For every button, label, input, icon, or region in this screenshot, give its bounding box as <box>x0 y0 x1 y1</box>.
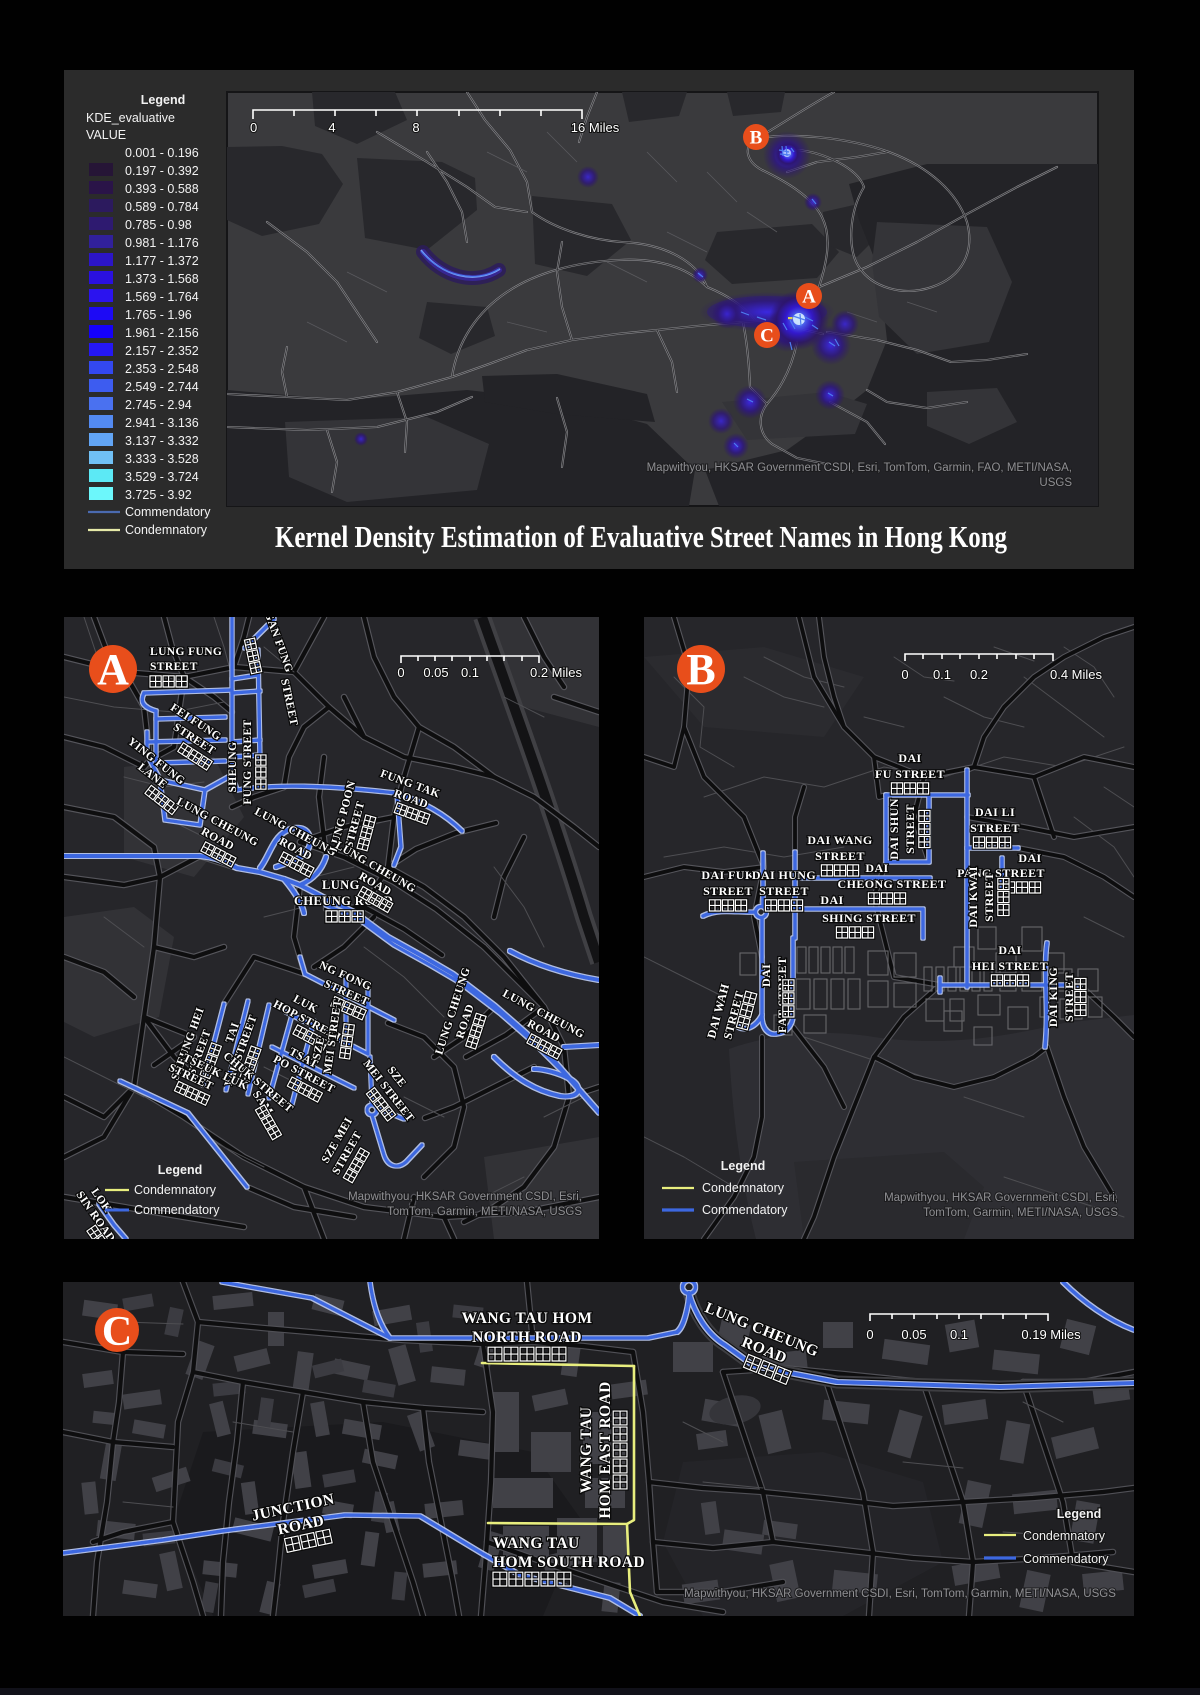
svg-text:STREET: STREET <box>815 849 865 863</box>
svg-text:CHEONG STREET: CHEONG STREET <box>838 877 947 891</box>
svg-text:Commendatory: Commendatory <box>1023 1552 1109 1566</box>
svg-text:3.333 - 3.528: 3.333 - 3.528 <box>125 452 199 466</box>
svg-text:Condemnatory: Condemnatory <box>134 1183 217 1197</box>
svg-text:3.137 - 3.332: 3.137 - 3.332 <box>125 434 199 448</box>
svg-text:0.1: 0.1 <box>950 1327 968 1342</box>
svg-text:3.529 - 3.724: 3.529 - 3.724 <box>125 470 199 484</box>
svg-text:SHEUNG: SHEUNG <box>227 742 239 793</box>
svg-text:0.2: 0.2 <box>970 667 988 682</box>
svg-text:3.725 - 3.92: 3.725 - 3.92 <box>125 488 192 502</box>
svg-text:KDE_evaluative: KDE_evaluative <box>86 111 175 125</box>
svg-text:0.4 Miles: 0.4 Miles <box>1050 667 1103 682</box>
svg-text:DAI FUK: DAI FUK <box>701 868 754 882</box>
svg-text:STREET: STREET <box>759 884 809 898</box>
svg-text:0.1: 0.1 <box>461 665 479 680</box>
svg-text:FUNG STREET: FUNG STREET <box>242 719 254 804</box>
svg-text:DAI HUNG: DAI HUNG <box>752 868 816 882</box>
svg-text:Condemnatory: Condemnatory <box>702 1181 785 1195</box>
svg-text:LUNG: LUNG <box>322 878 360 892</box>
svg-text:Mapwithyou, HKSAR Government C: Mapwithyou, HKSAR Government CSDI, Esri,… <box>647 462 1072 474</box>
svg-text:Kernel Density Estimation of E: Kernel Density Estimation of Evaluative … <box>275 519 1007 554</box>
svg-text:STREET: STREET <box>982 872 996 922</box>
svg-text:C: C <box>760 326 774 347</box>
svg-text:1.569 - 1.764: 1.569 - 1.764 <box>125 290 199 304</box>
svg-text:Mapwithyou, HKSAR Government C: Mapwithyou, HKSAR Government CSDI, Esri, <box>884 1192 1118 1204</box>
svg-text:1.177 - 1.372: 1.177 - 1.372 <box>125 254 199 268</box>
svg-text:Commendatory: Commendatory <box>134 1203 220 1217</box>
svg-text:TomTom, Garmin, METI/NASA, USG: TomTom, Garmin, METI/NASA, USGS <box>923 1207 1118 1219</box>
svg-text:STREET: STREET <box>150 661 198 673</box>
svg-text:Mapwithyou, HKSAR Government C: Mapwithyou, HKSAR Government CSDI, Esri,… <box>684 1588 1116 1600</box>
svg-text:C: C <box>102 1309 132 1355</box>
svg-text:DAI: DAI <box>759 964 773 987</box>
svg-text:DAI SHUN: DAI SHUN <box>887 798 901 860</box>
svg-text:0.589 - 0.784: 0.589 - 0.784 <box>125 200 199 214</box>
svg-text:HEI STREET: HEI STREET <box>972 959 1048 973</box>
svg-text:B: B <box>750 128 763 149</box>
svg-text:2.549 - 2.744: 2.549 - 2.744 <box>125 380 199 394</box>
svg-text:0.785 - 0.98: 0.785 - 0.98 <box>125 218 192 232</box>
svg-text:STREET: STREET <box>703 884 753 898</box>
svg-text:Commendatory: Commendatory <box>125 505 211 519</box>
svg-text:2.157 - 2.352: 2.157 - 2.352 <box>125 344 199 358</box>
svg-text:A: A <box>97 645 129 694</box>
svg-text:1.961 - 2.156: 1.961 - 2.156 <box>125 326 199 340</box>
svg-text:0.19 Miles: 0.19 Miles <box>1021 1327 1081 1342</box>
svg-text:B: B <box>686 645 715 694</box>
svg-text:WANG TAU: WANG TAU <box>493 1535 580 1552</box>
svg-text:DAI: DAI <box>998 943 1021 957</box>
svg-text:Legend: Legend <box>1057 1507 1101 1521</box>
svg-text:Legend: Legend <box>721 1159 765 1173</box>
svg-text:Mapwithyou, HKSAR Government C: Mapwithyou, HKSAR Government CSDI, Esri, <box>348 1191 582 1203</box>
svg-text:0: 0 <box>866 1327 873 1342</box>
svg-text:0.001 - 0.196: 0.001 - 0.196 <box>125 146 199 160</box>
svg-text:Condemnatory: Condemnatory <box>1023 1529 1106 1543</box>
svg-text:0.981 - 1.176: 0.981 - 1.176 <box>125 236 199 250</box>
svg-text:2.353 - 2.548: 2.353 - 2.548 <box>125 362 199 376</box>
svg-text:Legend: Legend <box>158 1163 202 1177</box>
svg-text:0.2 Miles: 0.2 Miles <box>530 665 583 680</box>
svg-text:WANG TAU HOM: WANG TAU HOM <box>462 1310 593 1327</box>
svg-text:1.373 - 1.568: 1.373 - 1.568 <box>125 272 199 286</box>
svg-text:USGS: USGS <box>1039 477 1072 489</box>
svg-text:NORTH ROAD: NORTH ROAD <box>472 1329 582 1346</box>
svg-text:HOM EAST ROAD: HOM EAST ROAD <box>597 1381 614 1519</box>
svg-text:WANG TAU: WANG TAU <box>578 1407 595 1494</box>
svg-text:STREET: STREET <box>970 821 1020 835</box>
svg-text:8: 8 <box>412 120 419 135</box>
svg-text:SHING STREET: SHING STREET <box>822 911 916 925</box>
svg-text:DAI: DAI <box>820 893 843 907</box>
svg-text:Condemnatory: Condemnatory <box>125 523 208 537</box>
svg-text:DAI KWAI: DAI KWAI <box>966 866 980 928</box>
svg-text:DAI: DAI <box>1018 851 1041 865</box>
svg-text:DAI LI: DAI LI <box>975 805 1015 819</box>
svg-text:Commendatory: Commendatory <box>702 1203 788 1217</box>
svg-text:0.393 - 0.588: 0.393 - 0.588 <box>125 182 199 196</box>
svg-text:0: 0 <box>397 665 404 680</box>
svg-text:0.1: 0.1 <box>933 667 951 682</box>
svg-text:0: 0 <box>250 120 257 135</box>
svg-text:0.05: 0.05 <box>423 665 448 680</box>
svg-text:DAI: DAI <box>865 861 888 875</box>
svg-text:LUNG FUNG: LUNG FUNG <box>150 646 222 658</box>
svg-text:DAI: DAI <box>898 751 921 765</box>
svg-text:2.941 - 3.136: 2.941 - 3.136 <box>125 416 199 430</box>
svg-text:FU STREET: FU STREET <box>875 767 945 781</box>
svg-text:STREET: STREET <box>903 804 917 854</box>
svg-text:DAI KING: DAI KING <box>1046 967 1060 1027</box>
svg-text:0: 0 <box>901 667 908 682</box>
svg-text:HOM SOUTH ROAD: HOM SOUTH ROAD <box>493 1554 645 1571</box>
svg-text:1.765 - 1.96: 1.765 - 1.96 <box>125 308 192 322</box>
svg-text:16 Miles: 16 Miles <box>571 120 620 135</box>
svg-text:DAI WANG: DAI WANG <box>807 833 872 847</box>
svg-text:VALUE: VALUE <box>86 128 126 142</box>
svg-text:Legend: Legend <box>141 93 185 107</box>
svg-text:0.05: 0.05 <box>901 1327 926 1342</box>
svg-text:TomTom, Garmin, METI/NASA, USG: TomTom, Garmin, METI/NASA, USGS <box>387 1206 582 1218</box>
svg-text:A: A <box>802 287 816 308</box>
svg-text:0.197 - 0.392: 0.197 - 0.392 <box>125 164 199 178</box>
svg-text:4: 4 <box>328 120 335 135</box>
svg-text:2.745 - 2.94: 2.745 - 2.94 <box>125 398 192 412</box>
